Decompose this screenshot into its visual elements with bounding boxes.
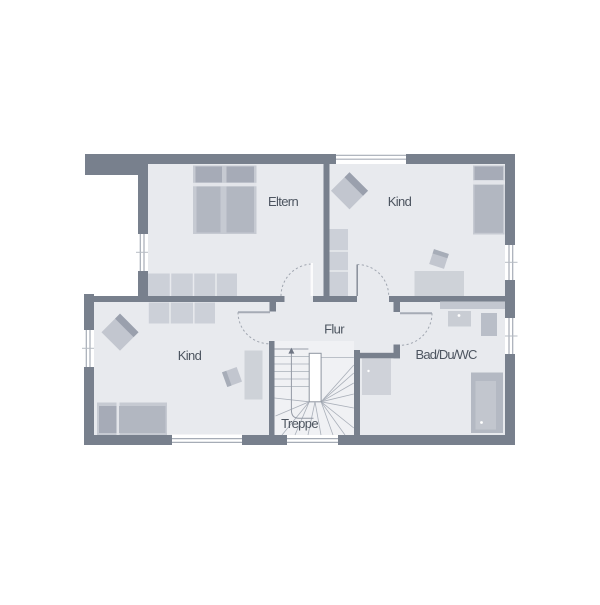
svg-text:Treppe: Treppe: [281, 416, 318, 431]
svg-text:Kind: Kind: [178, 348, 202, 363]
svg-text:Bad/Du/WC: Bad/Du/WC: [416, 347, 477, 362]
svg-text:Kind: Kind: [388, 194, 412, 209]
svg-text:Flur: Flur: [324, 321, 345, 336]
svg-text:Eltern: Eltern: [268, 194, 298, 209]
